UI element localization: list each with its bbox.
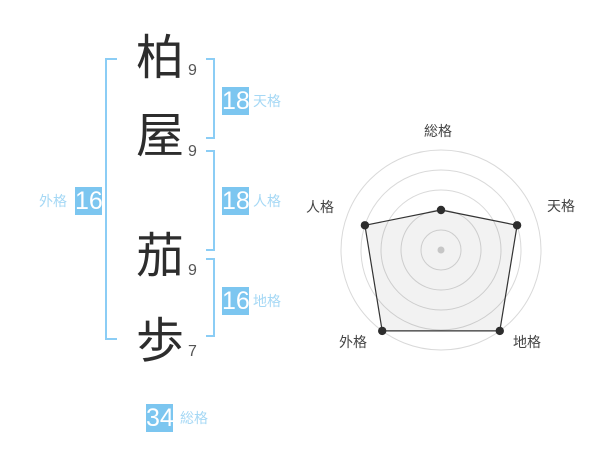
radar-vertex-dot [437, 206, 445, 214]
name-analysis-panel: 外格 16 柏 屋 茄 歩 9 9 9 7 18 天格 18 人格 16 地格 … [0, 0, 600, 470]
radar-vertex-dot [496, 327, 504, 335]
radar-data-polygon [365, 210, 517, 331]
radar-axis-label-5: 人格 [306, 199, 334, 215]
radar-vertex-dot [361, 221, 369, 229]
radar-center-dot [438, 247, 445, 254]
radar-axis-label-1: 総格 [424, 123, 452, 139]
radar-vertex-dot [378, 327, 386, 335]
radar-axis-label-2: 天格 [547, 198, 575, 214]
radar-chart: 総格天格地格外格人格 [0, 0, 600, 470]
radar-axis-label-4: 外格 [339, 334, 367, 350]
radar-axis-label-3: 地格 [513, 334, 541, 350]
radar-vertex-dot [513, 221, 521, 229]
